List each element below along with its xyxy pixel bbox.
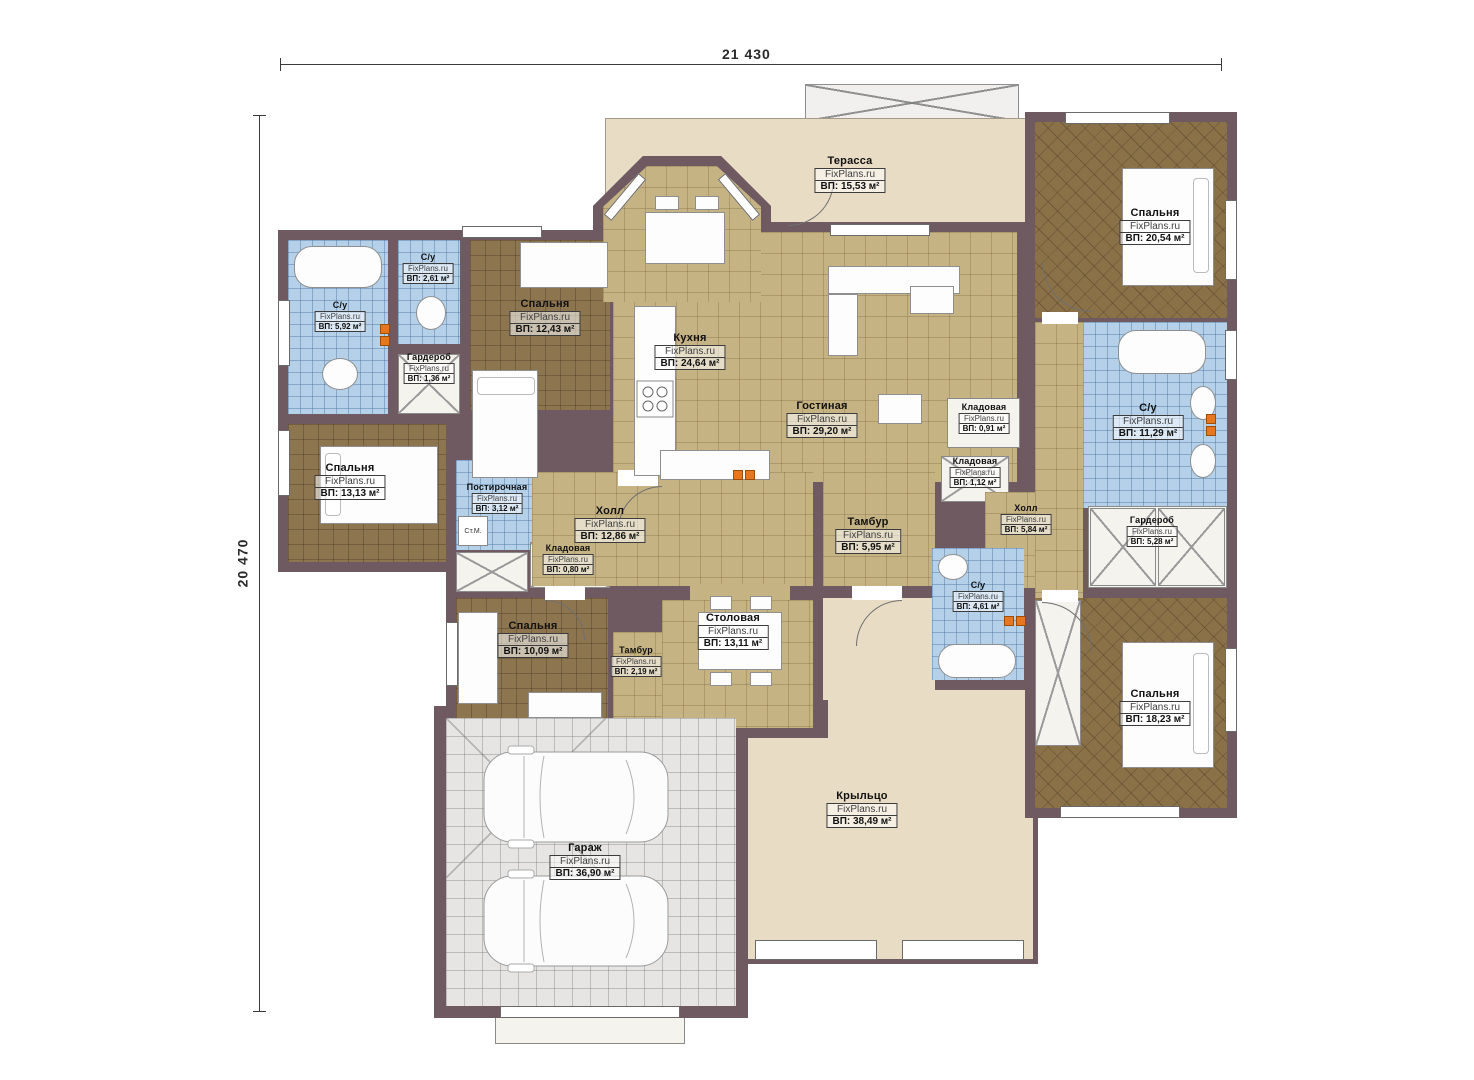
washing-machine: Ст.М. <box>458 516 488 546</box>
window <box>1225 330 1237 380</box>
sink <box>416 296 446 330</box>
watermark: FixPlans.ru <box>1120 221 1189 233</box>
chair <box>710 672 732 686</box>
watermark: FixPlans.ru <box>1114 416 1183 428</box>
washing-machine-label: Ст.М. <box>464 528 481 535</box>
room-label-terrace: Терасса FixPlans.ruВП: 15,53 м² <box>814 155 885 194</box>
sofa <box>828 294 858 356</box>
room-label-pantry-left: Кладовая FixPlans.ruВП: 0,80 м² <box>543 543 594 577</box>
room-label-bedroom-br: Спальня FixPlans.ruВП: 18,23 м² <box>1119 688 1190 727</box>
door-gap <box>545 586 585 600</box>
vent-icon <box>1004 616 1026 626</box>
watermark: FixPlans.ru <box>544 555 593 565</box>
window <box>1060 806 1180 818</box>
room-label-garage: Гараж FixPlans.ruВП: 36,90 м² <box>549 842 620 881</box>
dimension-width-label: 21 430 <box>722 46 771 62</box>
watermark: FixPlans.ru <box>550 856 619 868</box>
watermark: FixPlans.ru <box>316 312 365 322</box>
chair <box>750 672 772 686</box>
room-label-porch: Крыльцо FixPlans.ruВП: 38,49 м² <box>826 790 897 829</box>
room-label-su-center: С/у FixPlans.ruВП: 4,61 м² <box>953 580 1004 614</box>
room-label-pantry-c2: Кладовая FixPlans.ruВП: 1,12 м² <box>950 456 1001 490</box>
room-label-hall-main: Холл FixPlans.ruВП: 12,86 м² <box>574 505 645 544</box>
room-label-laundry: Постирочная FixPlans.ruВП: 3,12 м² <box>467 482 528 516</box>
watermark: FixPlans.ru <box>1128 527 1177 537</box>
room-label-bedroom-tl: Спальня FixPlans.ruВП: 12,43 м² <box>509 298 580 337</box>
room-label-wardrobe-left: Гардероб FixPlans.ruВП: 1,36 м² <box>404 352 455 386</box>
room-label-su-small-tl: С/у FixPlans.ruВП: 2,61 м² <box>403 252 454 286</box>
watermark: FixPlans.ru <box>787 414 856 426</box>
bathtub <box>294 246 382 288</box>
room-label-bedroom-bl: Спальня FixPlans.ruВП: 10,09 м² <box>497 620 568 659</box>
window <box>462 226 542 238</box>
door-gap <box>852 586 902 600</box>
watermark: FixPlans.ru <box>954 592 1003 602</box>
watermark: FixPlans.ru <box>815 169 884 181</box>
dimension-line-top <box>280 64 1222 65</box>
room-label-pantry-c1: Кладовая FixPlans.ruВП: 0,91 м² <box>959 402 1010 436</box>
room-label-bedroom-tr: Спальня FixPlans.ruВП: 20,54 м² <box>1119 207 1190 246</box>
porch-step <box>902 940 1024 960</box>
bathtub <box>938 644 1016 678</box>
window <box>278 430 290 496</box>
room-label-kitchen: Кухня FixPlans.ruВП: 24,64 м² <box>654 332 725 371</box>
window <box>278 300 290 366</box>
watermark: FixPlans.ru <box>951 468 1000 478</box>
vent-icon <box>380 324 390 346</box>
window <box>1225 200 1237 280</box>
watermark: FixPlans.ru <box>1002 515 1051 525</box>
room-label-living: Гостиная FixPlans.ruВП: 29,20 м² <box>786 400 857 439</box>
coffee-table <box>878 394 922 424</box>
watermark: FixPlans.ru <box>699 626 768 638</box>
sink <box>322 358 358 390</box>
door-gap <box>1042 590 1078 602</box>
chair <box>710 596 732 610</box>
watermark: FixPlans.ru <box>315 476 384 488</box>
room-label-tambur-main: Тамбур FixPlans.ruВП: 5,95 м² <box>835 516 901 555</box>
window <box>1225 648 1237 732</box>
dimension-height-label: 20 470 <box>234 539 250 588</box>
car <box>478 868 674 974</box>
watermark: FixPlans.ru <box>836 530 900 542</box>
watermark: FixPlans.ru <box>960 414 1009 424</box>
canopy-roof <box>805 84 1019 122</box>
watermark: FixPlans.ru <box>575 519 644 531</box>
bed <box>472 370 538 478</box>
sofa <box>458 612 498 704</box>
chair <box>750 596 772 610</box>
window <box>1065 112 1170 124</box>
room-label-dining: Столовая FixPlans.ruВП: 13,11 м² <box>698 612 769 651</box>
dining-table <box>645 212 725 264</box>
right-corridor <box>1035 322 1083 508</box>
vent-icon <box>733 470 755 480</box>
room-label-tambur-small: Тамбур FixPlans.ruВП: 2,19 м² <box>611 645 662 679</box>
toilet <box>1190 444 1216 478</box>
watermark: FixPlans.ru <box>827 804 896 816</box>
chair <box>695 196 719 210</box>
watermark: FixPlans.ru <box>498 634 567 646</box>
watermark: FixPlans.ru <box>655 346 724 358</box>
dimension-line-left <box>259 115 260 1012</box>
room-label-su-left: С/у FixPlans.ruВП: 5,92 м² <box>315 300 366 334</box>
room-label-hall-right: Холл FixPlans.ruВП: 5,84 м² <box>1001 503 1052 537</box>
room-label-wardrobe-right: Гардероб FixPlans.ruВП: 5,28 м² <box>1127 515 1178 549</box>
room-label-su-right: С/у FixPlans.ruВП: 11,29 м² <box>1113 402 1184 441</box>
desk <box>520 242 608 288</box>
bathtub <box>1118 330 1206 374</box>
watermark: FixPlans.ru <box>510 312 579 324</box>
terrace-door <box>830 224 930 236</box>
door-gap <box>1042 312 1078 324</box>
watermark: FixPlans.ru <box>404 264 453 274</box>
garage-entry-pad <box>495 1014 685 1044</box>
vent-icon <box>1206 414 1216 436</box>
stove-icon <box>636 380 674 418</box>
watermark: FixPlans.ru <box>612 657 661 667</box>
sink <box>938 554 968 580</box>
room-label-bedroom-ml: Спальня FixPlans.ruВП: 13,13 м² <box>314 462 385 501</box>
porch-step <box>755 940 877 960</box>
car <box>478 744 674 850</box>
watermark: FixPlans.ru <box>1120 702 1189 714</box>
armchair <box>910 286 954 314</box>
watermark: FixPlans.ru <box>473 494 522 504</box>
desk <box>528 692 602 718</box>
garage-door <box>500 1006 680 1018</box>
floor-plan: 21 430 20 470 <box>0 0 1474 1080</box>
hall-closet <box>456 552 528 592</box>
window <box>446 622 458 686</box>
chair <box>655 196 679 210</box>
watermark: FixPlans.ru <box>405 364 454 374</box>
